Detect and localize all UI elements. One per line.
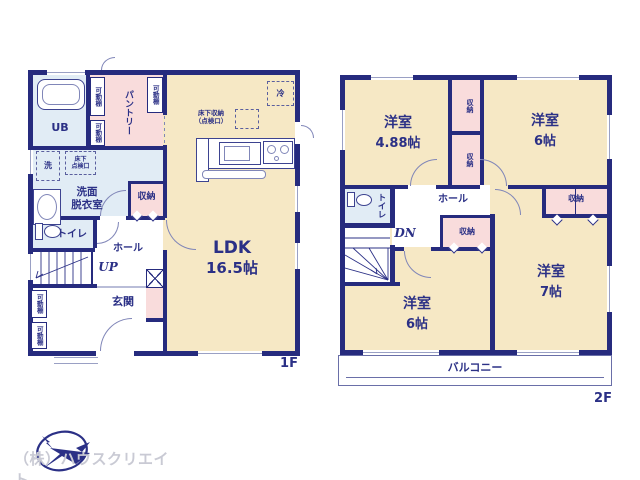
washroom-label-2: 脱衣室 [71, 199, 103, 211]
window [295, 186, 300, 212]
window [47, 70, 85, 75]
wall [436, 185, 480, 189]
floor2-label: 2F [590, 391, 616, 407]
underfloor-storage-box [235, 109, 259, 129]
movable-shelf: 可動棚 [90, 120, 105, 146]
washroom-label-1: 洗面 [77, 186, 98, 198]
toilet-2f-label: トイレ [372, 189, 385, 223]
movable-shelf: 可動棚 [31, 322, 47, 349]
shelf-label: 可動棚 [94, 123, 101, 143]
bedroom-488-name: 洋室 [384, 115, 412, 131]
washer-label: 洗 [44, 161, 52, 171]
floor-storage-1: 床下収納 [198, 109, 224, 117]
window [607, 115, 612, 159]
wall [33, 146, 163, 150]
window [340, 110, 345, 150]
closet-column-b-label: 収納 [459, 142, 473, 178]
wall [163, 250, 167, 351]
shelf-label: 可動棚 [94, 87, 101, 107]
stove-burner [280, 145, 289, 154]
stove-burner [267, 145, 276, 154]
kitchen-front-shelf [202, 170, 266, 179]
window [517, 75, 579, 80]
window [28, 150, 33, 174]
toilet-1f-label: トイレ [52, 229, 92, 241]
movable-shelf: 可動棚 [31, 290, 47, 318]
wall [146, 318, 164, 322]
wall [163, 75, 167, 115]
closet-bedroom7-label: 収納 [560, 194, 592, 204]
kitchen-door-gap [295, 122, 300, 144]
washroom-sink-bowl [37, 194, 57, 220]
wall [440, 215, 443, 251]
wall [395, 247, 404, 251]
bedroom-6-top-size: 6帖 [534, 134, 556, 149]
fridge-label: 冷 [277, 89, 285, 99]
hall-2f-label: ホール [428, 194, 478, 206]
window [198, 351, 262, 356]
bedroom-6-bottom-label: 洋室 6帖 [387, 293, 447, 332]
wall [390, 245, 395, 286]
floor-plan-canvas: 洗 床下点検口 冷 可動棚 可動棚 可動棚 可動棚 可動棚 UB パントリー [0, 0, 640, 480]
bathtub-inner [42, 84, 80, 105]
wall [542, 214, 607, 218]
ldk-name: LDK [213, 238, 251, 258]
bedroom-488-size: 4.88帖 [375, 136, 420, 151]
front-door-gap [96, 351, 134, 356]
stairs-edge-line [91, 252, 93, 284]
movable-shelf: 可動棚 [90, 77, 105, 116]
shelf-label: 可動棚 [36, 294, 43, 314]
hatch-label-1: 床下 [74, 156, 86, 163]
shoe-box [146, 269, 164, 288]
toilet-tank-1f [35, 223, 43, 240]
underfloor-storage-label: 床下収納 （点検口） [188, 110, 234, 126]
pantry-label: パントリー [118, 79, 132, 145]
wall [295, 70, 300, 356]
washroom-label: 洗面 脱衣室 [58, 186, 116, 211]
floor-storage-2: （点検口） [195, 117, 228, 125]
wall [508, 185, 607, 189]
stairs-down [345, 228, 390, 282]
wall [448, 131, 484, 135]
window [295, 243, 300, 269]
kitchen-sink-basin [224, 146, 250, 161]
balcony-inner-line [346, 377, 604, 378]
bedroom-7-name: 洋室 [537, 264, 565, 280]
wall [440, 215, 492, 218]
wall [128, 181, 165, 184]
entrance-label: 玄関 [102, 295, 144, 308]
wall [28, 284, 97, 288]
fridge-space: 冷 [267, 81, 294, 106]
closet-1f-label: 収納 [129, 192, 164, 203]
underfloor-hatch: 床下点検口 [65, 151, 96, 175]
ldk-label: LDK 16.5帖 [186, 238, 278, 278]
wall [390, 185, 395, 228]
bedroom-7-label: 洋室 7帖 [521, 261, 581, 300]
toilet-tank-2f [347, 192, 355, 207]
stairs-up [33, 250, 91, 284]
entrance-cabinet-strip [146, 288, 163, 318]
washing-machine: 洗 [36, 151, 60, 181]
ldk-size: 16.5帖 [206, 259, 258, 277]
window [607, 266, 612, 312]
hall-1f-label: ホール [104, 243, 152, 255]
pantry-opening-dash [164, 116, 165, 145]
up-label: UP [95, 260, 121, 274]
window [371, 75, 413, 80]
door-arc-kitchen-back [301, 125, 314, 138]
bedroom-7-size: 7帖 [540, 285, 562, 300]
bath-label: UB [40, 121, 80, 134]
bedroom-6-top-label: 洋室 6帖 [515, 110, 575, 149]
stove-burner-small [274, 156, 279, 161]
hatch-label-2: 点検口 [71, 163, 89, 170]
closet-column-a-label: 収納 [459, 88, 473, 124]
porch-steps [54, 357, 98, 364]
wall [340, 282, 400, 286]
floor1-label: 1F [278, 356, 300, 372]
company-name: （株）ハウスクリエイト [14, 448, 184, 480]
shelf-label: 可動棚 [152, 85, 159, 105]
balcony-label: バルコニー [415, 361, 535, 374]
bedroom-6-bottom-size: 6帖 [406, 317, 428, 332]
bedroom-6-top-name: 洋室 [531, 113, 559, 129]
bedroom-488-label: 洋室 4.88帖 [368, 112, 428, 151]
shelf-label: 可動棚 [36, 326, 43, 346]
movable-shelf: 可動棚 [147, 77, 163, 113]
bedroom-6-bottom-name: 洋室 [403, 296, 431, 312]
wall [490, 214, 495, 354]
door-arc-pantry [101, 57, 115, 70]
closet-center-label: 収納 [453, 227, 481, 237]
toilet-bowl-2f [356, 194, 372, 206]
dn-label: DN [392, 226, 418, 240]
